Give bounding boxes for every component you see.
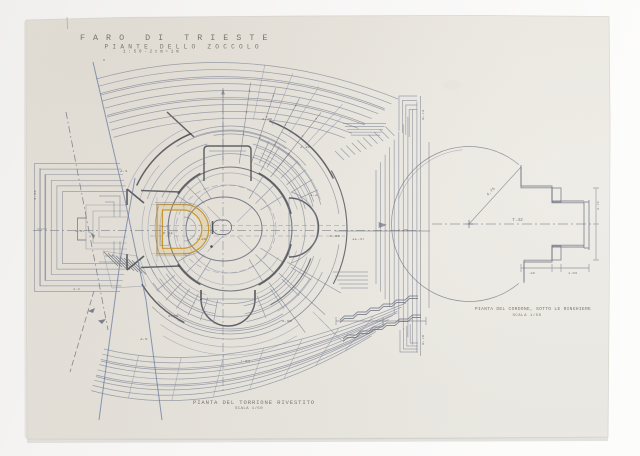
svg-text:5.78: 5.78 [422, 334, 426, 345]
svg-text:7.38: 7.38 [196, 238, 207, 242]
svg-text:4.60: 4.60 [282, 320, 293, 324]
svg-text:1.2: 1.2 [310, 194, 318, 198]
svg-text:SCALA 1/50: SCALA 1/50 [235, 406, 263, 411]
svg-text:5.74: 5.74 [422, 109, 426, 120]
svg-text:PIANTA DEL CORDONE, SOTTO LE R: PIANTA DEL CORDONE, SOTTO LE RINGHIERE [475, 306, 591, 312]
svg-text:2.76: 2.76 [597, 201, 601, 210]
svg-text:4.30: 4.30 [262, 118, 273, 122]
svg-text:PIANTA DEL TORRIONE RIVESTITO: PIANTA DEL TORRIONE RIVESTITO [193, 399, 315, 406]
svg-text:6.88: 6.88 [330, 235, 341, 239]
svg-text:FARO DI TRIESTE: FARO DI TRIESTE [80, 33, 275, 43]
svg-text:5.00: 5.00 [168, 315, 179, 319]
svg-text:.18: .18 [528, 272, 536, 276]
svg-text:7.42: 7.42 [512, 217, 523, 223]
svg-text:1.04: 1.04 [568, 272, 578, 276]
svg-text:SCALA 1/50: SCALA 1/50 [512, 313, 541, 318]
svg-text:3.6: 3.6 [140, 338, 148, 342]
svg-text:4.07: 4.07 [75, 230, 86, 234]
svg-text:4.34: 4.34 [34, 190, 38, 200]
svg-text:P 34: P 34 [163, 233, 173, 237]
svg-text:2.30: 2.30 [398, 229, 409, 233]
svg-text:11.47: 11.47 [352, 238, 365, 242]
svg-text:7.04: 7.04 [240, 360, 251, 364]
svg-text:3.10: 3.10 [300, 146, 311, 150]
svg-text:1:50-2cm=1m: 1:50-2cm=1m [123, 49, 181, 55]
svg-text:2.4: 2.4 [120, 170, 128, 174]
